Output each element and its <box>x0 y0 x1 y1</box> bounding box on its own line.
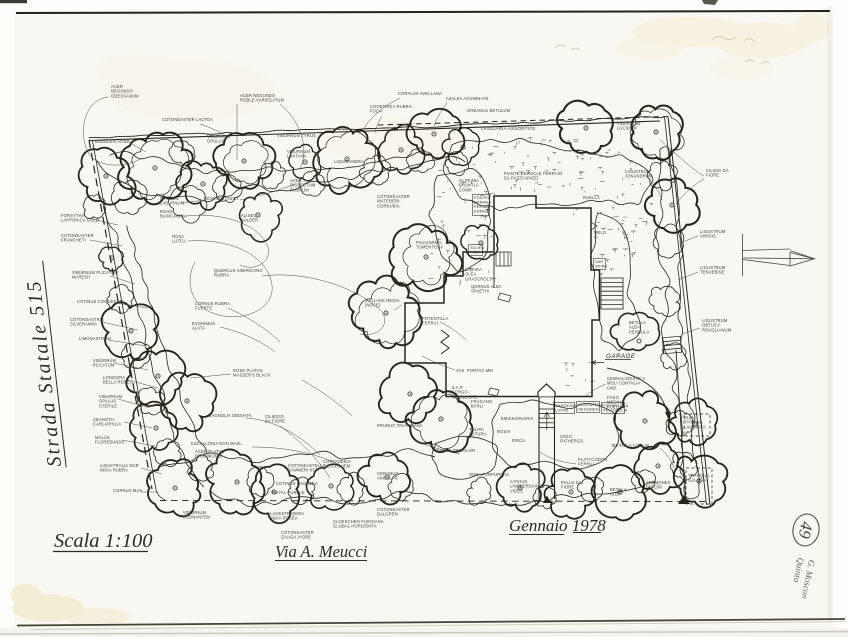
svg-text:EMISSIONAIRIA: EMISSIONAIRIA <box>501 416 534 421</box>
svg-text:GARAGE: GARAGE <box>606 353 636 360</box>
svg-text:ESCALLONIA DON MASL: ESCALLONIA DON MASL <box>191 441 242 446</box>
svg-text:COTINUS COGGERATI: COTINUS COGGERATI <box>77 299 123 304</box>
svg-text:POTENTILLA PELO-FOLIA: POTENTILLA PELO-FOLIA <box>603 403 629 413</box>
svg-text:ROYAL PURPLE: ROYAL PURPLE <box>272 490 305 495</box>
svg-text:LIGUSTRUM JONANDRUM: LIGUSTRUM JONANDRUM <box>625 169 653 179</box>
svg-text:ROSA LUTEA: ROSA LUTEA <box>172 234 186 244</box>
svg-text:LIGULARIA ASSORTITE: LIGULARIA ASSORTITE <box>481 126 536 131</box>
svg-text:CORYLUS AVELLANA: CORYLUS AVELLANA <box>398 91 442 96</box>
svg-text:VIBURNUM TYRUS: VIBURNUM TYRUS <box>277 133 316 138</box>
svg-text:RUELLA: RUELLA <box>583 195 600 200</box>
svg-text:ACER PLATAN DRUMMONDI: ACER PLATAN DRUMMONDI <box>195 449 226 459</box>
svg-text:OREANUS BETULUM: OREANUS BETULUM <box>467 108 511 113</box>
svg-text:MAGNOLIA OBOVATA: MAGNOLIA OBOVATA <box>208 413 252 418</box>
svg-text:ODEA FURPUREAS: ODEA FURPUREAS <box>469 472 509 477</box>
svg-text:COTONEASTER LACTEA: COTONEASTER LACTEA <box>162 117 213 122</box>
svg-text:COTINUS GAGGLEA: COTINUS GAGGLEA <box>276 481 318 486</box>
svg-text:Via A. Meucci: Via A. Meucci <box>275 542 368 561</box>
svg-text:PRUNUS TINARCIANA: PRUNUS TINARCIANA <box>377 423 423 428</box>
svg-text:BETULA UTILIS: BETULA UTILIS <box>612 443 650 449</box>
svg-text:ROSAI: ROSAI <box>497 429 511 434</box>
svg-text:ALISEO SALDER: ALISEO SALDER <box>241 213 258 223</box>
svg-text:LIQUIDAMBRA: LIQUIDAMBRA <box>334 159 364 164</box>
svg-text:LIMONASTRUM: LIMONASTRUM <box>79 336 111 341</box>
svg-text:CORTADERIA CLOSECHEM: CORTADERIA CLOSECHEM <box>323 459 352 469</box>
svg-text:VAS. PORTICI MM: VAS. PORTICI MM <box>456 368 493 373</box>
svg-text:CORNUS MAS: CORNUS MAS <box>113 488 142 493</box>
svg-text:CERAMUS ANGULAR: CERAMUS ANGULAR <box>377 471 400 481</box>
svg-text:ERICA: ERICA <box>512 438 525 443</box>
svg-text:VIBURNUM BODNANTEN: VIBURNUM BODNANTEN <box>183 510 210 520</box>
svg-text:LIGUSTRUM TENUEBISE: LIGUSTRUM TENUEBISE <box>700 265 727 275</box>
svg-text:BUDDLEIA HYBR.: BUDDLEIA HYBR. <box>95 139 131 144</box>
svg-text:PAULOWNIA TOMENTOSA: PAULOWNIA TOMENTOSA <box>416 240 443 250</box>
svg-text:VIBURNUM PLICATUM: VIBURNUM PLICATUM <box>93 358 117 368</box>
svg-text:CILIEGIO DA FIORE: CILIEGIO DA FIORE <box>265 414 285 424</box>
svg-text:AZALEA ACUMINATE: AZALEA ACUMINATE <box>446 96 489 101</box>
svg-text:Scala 1:100: Scala 1:100 <box>54 530 153 552</box>
svg-text:RESIA BOTANICI: RESIA BOTANICI <box>204 196 238 201</box>
svg-text:COTONEASTER ZALIGA VIGRE: COTONEASTER ZALIGA VIGRE <box>281 530 315 540</box>
svg-text:TULIPA FUTURA: TULIPA FUTURA <box>469 427 487 437</box>
svg-text:FAGUS TRICOLOR: FAGUS TRICOLOR <box>437 448 475 453</box>
